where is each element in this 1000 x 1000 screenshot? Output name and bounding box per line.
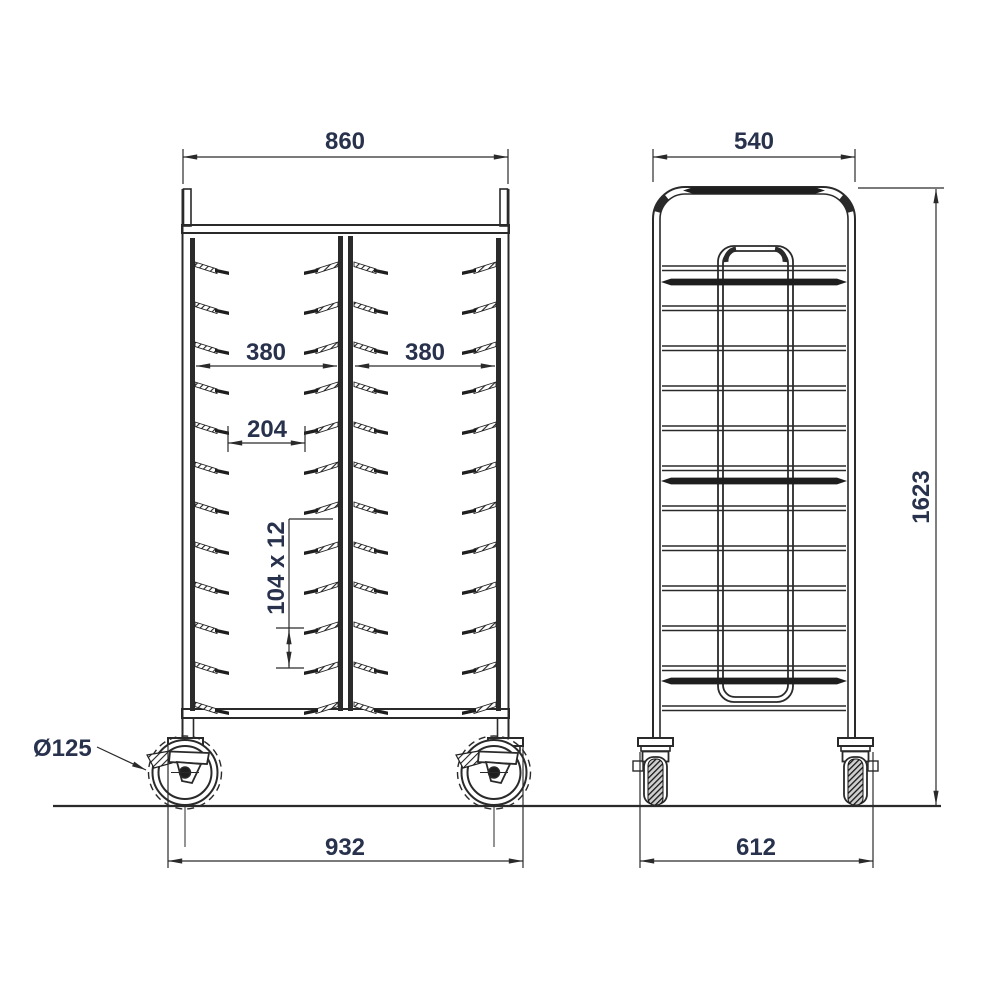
side-handle (718, 246, 793, 702)
dim-front-width: 860 (183, 128, 508, 184)
front-bottom-bar (182, 709, 509, 718)
dim-380-right-label: 380 (405, 339, 445, 366)
side-top-tube (683, 187, 825, 193)
front-rail-mid-left (338, 236, 343, 711)
caster-front (147, 736, 222, 847)
front-frame (182, 189, 509, 738)
front-rail-right (496, 238, 501, 711)
dim-612-label: 612 (736, 834, 776, 861)
front-view (147, 189, 531, 847)
front-casters (147, 736, 531, 847)
dim-support-clearance: 204 (228, 416, 305, 452)
caster-front (456, 736, 531, 847)
side-frame (653, 187, 855, 738)
tray-rails-side (661, 266, 847, 711)
front-top-bar (182, 225, 509, 233)
side-view (633, 187, 878, 805)
dim-caster-label: Ø125 (33, 735, 92, 762)
dim-side-depth: 540 (653, 128, 855, 182)
dim-104x12-label: 104 x 12 (263, 521, 290, 614)
front-rail-left (190, 238, 195, 711)
dim-380-left-label: 380 (246, 339, 286, 366)
side-caster-plates (638, 738, 873, 751)
dim-caster-diameter: Ø125 (33, 735, 146, 770)
trolley-technical-drawing: 860 540 380 380 204 (0, 0, 1000, 1000)
dim-540-label: 540 (734, 128, 774, 155)
front-rail-mid-right (348, 236, 353, 711)
dim-overall-height: 1623 (858, 188, 944, 805)
dim-1623-label: 1623 (908, 470, 935, 523)
side-casters (633, 752, 878, 806)
dim-support-pitch: 104 x 12 (263, 519, 333, 668)
drawing-canvas: 860 540 380 380 204 (0, 0, 1000, 1000)
dim-204-label: 204 (247, 416, 288, 443)
dim-860-label: 860 (325, 128, 365, 155)
dim-932-label: 932 (325, 834, 365, 861)
tray-supports-front (195, 262, 496, 715)
caster-side (633, 752, 669, 806)
dim-side-footprint: 612 (640, 752, 873, 868)
